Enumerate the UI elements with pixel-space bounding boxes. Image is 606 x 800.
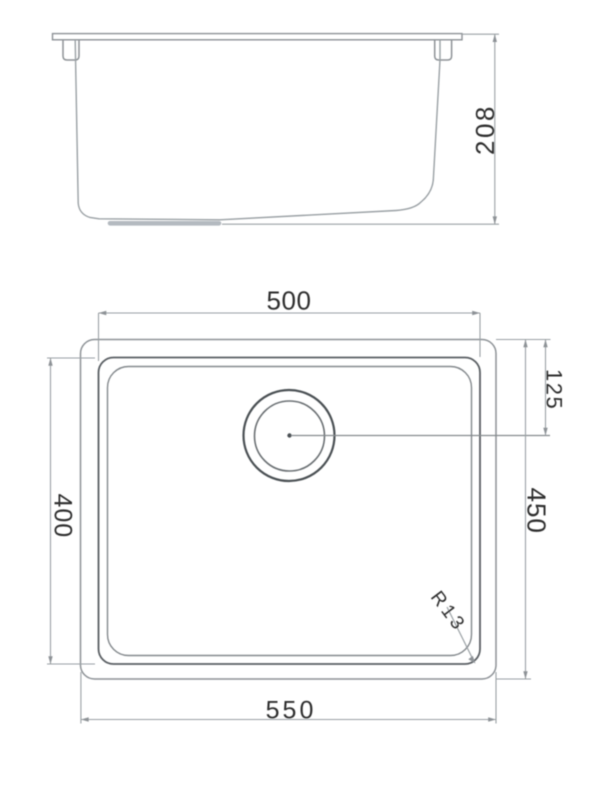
svg-text:450: 450 <box>522 488 552 534</box>
svg-text:208: 208 <box>470 104 500 155</box>
svg-text:125: 125 <box>542 369 567 410</box>
svg-text:550: 550 <box>266 697 317 725</box>
svg-text:400: 400 <box>49 494 77 539</box>
svg-text:500: 500 <box>267 286 312 316</box>
svg-text:R13: R13 <box>426 587 470 636</box>
